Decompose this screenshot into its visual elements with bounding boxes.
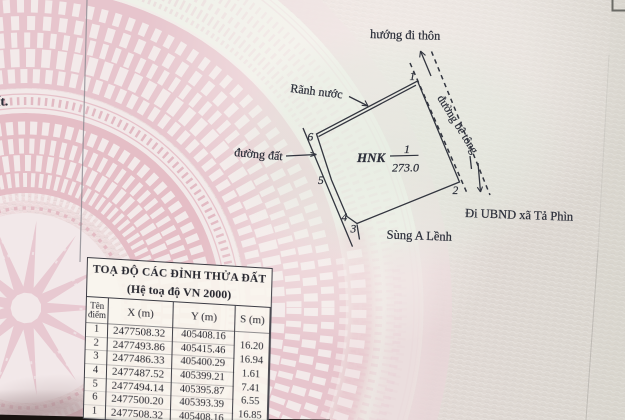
svg-text:3: 3 xyxy=(350,224,357,236)
svg-text:4: 4 xyxy=(342,212,348,224)
svg-text:ất.: ất. xyxy=(0,94,8,109)
svg-text:hướng đi thôn: hướng đi thôn xyxy=(370,27,441,43)
svg-text:2: 2 xyxy=(453,185,459,197)
svg-text:5: 5 xyxy=(318,175,324,187)
svg-text:273.0: 273.0 xyxy=(392,161,419,175)
svg-text:HNK: HNK xyxy=(356,150,387,165)
svg-text:1: 1 xyxy=(410,71,416,83)
svg-text:6: 6 xyxy=(308,132,314,144)
svg-text:Sùng A Lềnh: Sùng A Lềnh xyxy=(386,228,452,244)
svg-text:1: 1 xyxy=(404,142,410,156)
